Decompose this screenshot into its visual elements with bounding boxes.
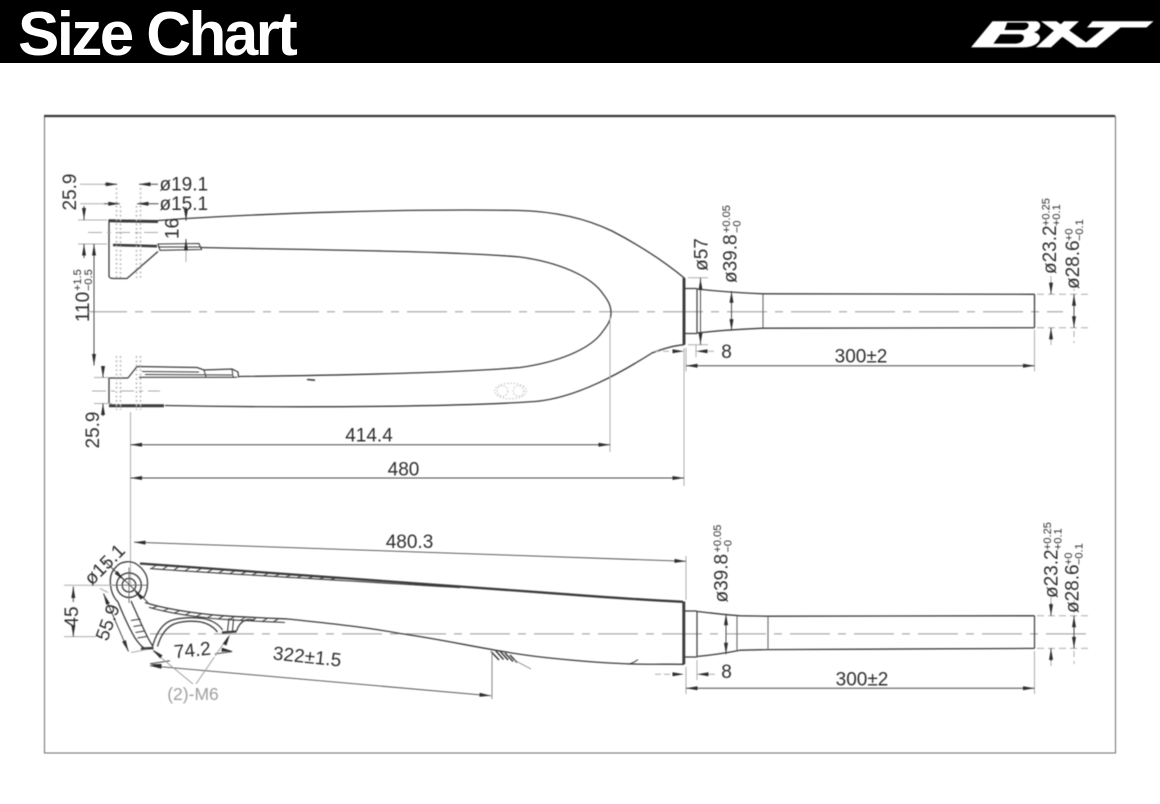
svg-text:−0: −0	[732, 220, 744, 233]
svg-text:+0.1: +0.1	[1053, 528, 1065, 550]
svg-text:45: 45	[62, 606, 83, 627]
svg-text:ø39.8: ø39.8	[721, 234, 742, 283]
svg-text:322±1.5: 322±1.5	[272, 644, 342, 672]
svg-text:8: 8	[721, 662, 732, 683]
svg-text:480: 480	[388, 460, 420, 481]
svg-text:16: 16	[163, 218, 184, 239]
svg-text:414.4: 414.4	[345, 426, 393, 447]
svg-text:110: 110	[73, 292, 94, 322]
svg-text:(2)-M6: (2)-M6	[167, 684, 219, 704]
svg-text:ø23.2: ø23.2	[1042, 549, 1063, 598]
svg-text:8: 8	[721, 342, 732, 363]
svg-text:ø39.8: ø39.8	[712, 554, 733, 603]
svg-text:300±2: 300±2	[835, 347, 888, 368]
svg-text:ø28.6: ø28.6	[1063, 240, 1084, 289]
svg-text:25.9: 25.9	[83, 412, 104, 449]
svg-text:ø15.1: ø15.1	[160, 194, 209, 215]
svg-text:74.2: 74.2	[173, 639, 212, 664]
svg-text:−0.1: −0.1	[1074, 219, 1086, 241]
svg-text:−0: −0	[723, 540, 735, 553]
svg-text:25.9: 25.9	[60, 174, 81, 211]
svg-text:ø23.2: ø23.2	[1040, 225, 1061, 274]
svg-text:ø57: ø57	[692, 238, 713, 271]
svg-text:ø28.6: ø28.6	[1063, 564, 1084, 613]
svg-text:−0.5: −0.5	[83, 269, 95, 291]
svg-text:480.3: 480.3	[386, 532, 434, 553]
svg-text:55.9: 55.9	[92, 602, 124, 644]
svg-text:300±2: 300±2	[836, 670, 889, 691]
svg-text:+0.1: +0.1	[1051, 204, 1063, 226]
svg-text:ø19.1: ø19.1	[160, 175, 209, 196]
svg-text:−0.1: −0.1	[1074, 543, 1086, 565]
